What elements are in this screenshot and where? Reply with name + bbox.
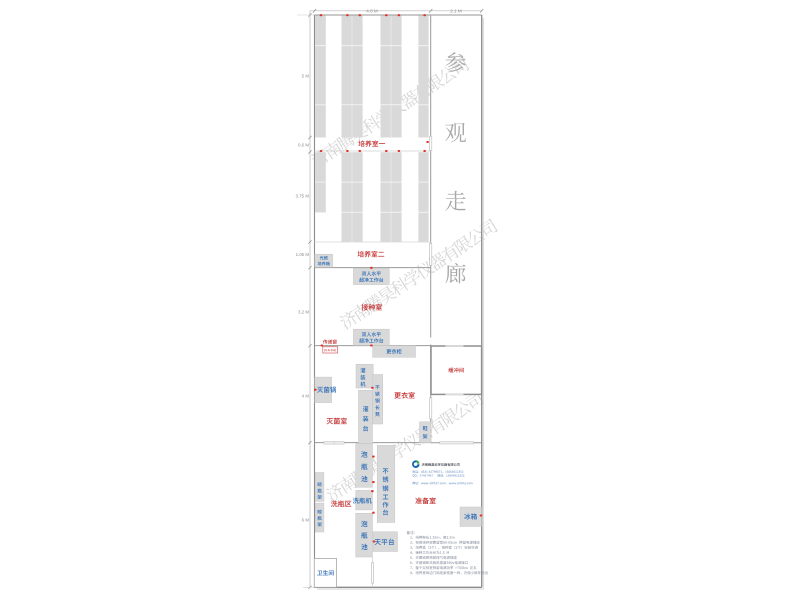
svg-text:0.6 M: 0.6 M [298, 142, 309, 147]
svg-text:5 M: 5 M [302, 74, 310, 79]
svg-text:3.75 M: 3.75 M [296, 194, 310, 199]
svg-text:3.2 M: 3.2 M [298, 309, 309, 314]
svg-text:6 M: 6 M [302, 517, 310, 522]
svg-text:4.8 M: 4.8 M [366, 8, 378, 13]
svg-text:4 M: 4 M [302, 394, 310, 399]
svg-text:1.05 M: 1.05 M [296, 252, 310, 257]
svg-text:2.1 M: 2.1 M [450, 8, 462, 13]
